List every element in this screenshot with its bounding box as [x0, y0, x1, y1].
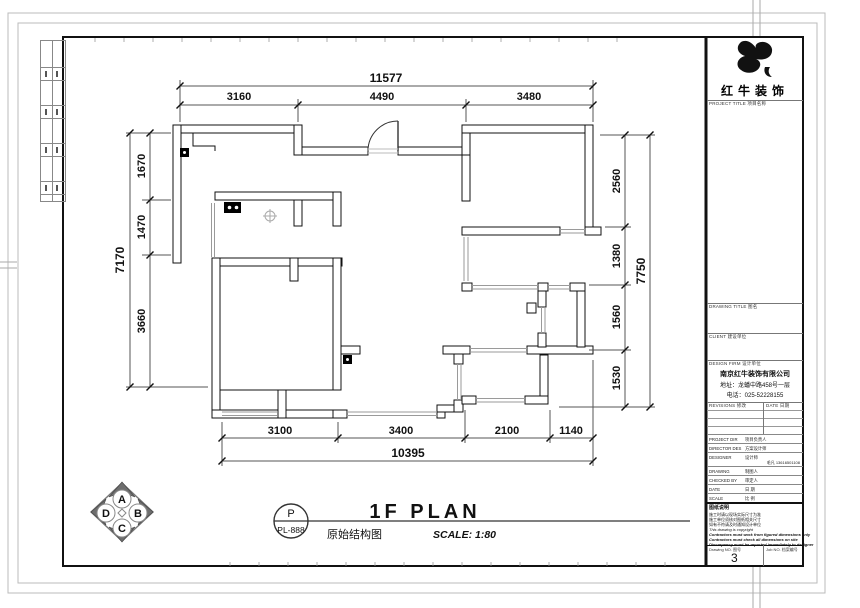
drawing-title-label: DRAWING TITLE 图名 [709, 304, 757, 310]
signature-cell [41, 105, 65, 119]
dim-top-3: 3480 [517, 91, 541, 103]
signature-cell [41, 143, 65, 157]
dim-left-1: 1670 [136, 154, 148, 178]
drawing-frame [63, 37, 803, 566]
stamp-number: PL-888 [277, 525, 305, 535]
firm-name: 南京红牛装饰有限公司 [707, 369, 803, 379]
titleblock-row: DESIGNER设计师 毛凡 13616501108 [707, 452, 803, 467]
signature-cell [41, 67, 65, 81]
stamp-letter: P [287, 508, 294, 520]
job-no-label: Job NO. 档案编号 [766, 547, 798, 553]
dim-left-total: 7170 [113, 246, 127, 273]
dim-right-total: 7750 [634, 257, 648, 284]
dim-bottom-total: 10395 [391, 446, 425, 460]
firm-address: 地址：龙蟠中路458号一层 [707, 380, 803, 389]
dim-left-2: 1470 [136, 215, 148, 239]
plan-title: 1F PLAN [369, 501, 480, 523]
revisions-column-divider [763, 402, 764, 434]
revisions-label: REVISIONS 修改 [709, 403, 746, 409]
plan-walls [173, 125, 601, 418]
notes-section: 图纸说明 施工时请以现场实际尺寸为准 施工单位须核对图纸相关尺寸 如有不符请及时… [709, 504, 802, 547]
title-block: 红牛装饰 PROJECT TITLE 项目名称 DRAWING TITLE 图名… [707, 37, 803, 566]
drawing-number: 3 [731, 551, 738, 565]
compass-d: D [102, 508, 110, 520]
drain-symbol [263, 209, 277, 223]
dim-right-4: 1530 [611, 366, 623, 390]
dim-left-3: 3660 [136, 309, 148, 333]
compass-c: C [118, 523, 126, 535]
title-stamp: P PL-888 1F PLAN 原始结构图 SCALE: 1:80 [274, 501, 690, 541]
notes-title: 图纸说明 [709, 504, 802, 511]
compass-a: A [118, 494, 126, 506]
dim-top-total: 11577 [370, 71, 403, 85]
dim-right-3: 1560 [611, 305, 623, 329]
client-label: CLIENT 建设单位 [709, 334, 746, 340]
closet-notch [193, 133, 215, 151]
brand-name: 红牛装饰 [707, 82, 803, 99]
revisions-date-label: DATE 日期 [766, 403, 789, 409]
brand-logo-bull-icon [729, 39, 781, 81]
dim-top-1: 3160 [227, 91, 251, 103]
plan-symbols [180, 148, 352, 364]
project-title-label: PROJECT TITLE 项目名称 [709, 101, 766, 107]
dim-right-2: 1380 [611, 244, 623, 268]
dim-bottom-1: 3100 [268, 425, 292, 437]
signature-cell [41, 181, 65, 195]
dim-right-1: 2560 [611, 169, 623, 193]
compass: A B C D [91, 482, 153, 542]
drawing-name-cn: 原始结构图 [327, 527, 382, 541]
floor-plan: 11577 3160 4490 3480 7170 1670 1470 3660… [113, 71, 655, 466]
dim-bottom-3: 2100 [495, 425, 519, 437]
signature-strip [40, 40, 66, 202]
compass-b: B [134, 508, 142, 520]
entry-door [368, 121, 398, 153]
scale-label: SCALE: 1:80 [433, 529, 496, 541]
design-firm-label: DESIGN FIRM 设计单位 [709, 361, 761, 367]
dim-bottom-2: 3400 [389, 425, 413, 437]
dim-bottom-4: 1140 [559, 425, 583, 437]
dim-top-2: 4490 [370, 91, 394, 103]
stove-symbol [224, 202, 241, 213]
firm-phone: 电话：025-52228155 [707, 390, 803, 399]
